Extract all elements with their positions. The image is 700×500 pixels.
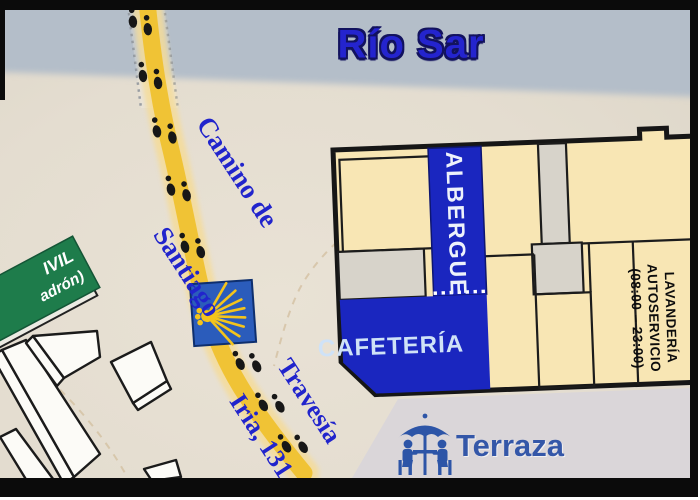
frame-top bbox=[0, 0, 700, 10]
frame-right bbox=[690, 0, 698, 497]
cafeteria-label: CAFETERÍA bbox=[317, 330, 464, 363]
frame-bottom bbox=[0, 478, 700, 497]
albergue-label: ALBERGUE bbox=[440, 151, 472, 297]
map-graphics: IVIL adrón) bbox=[0, 0, 700, 500]
corridor-wide bbox=[532, 243, 584, 295]
room-gray bbox=[338, 249, 426, 300]
terrace-label: Terraza bbox=[456, 428, 564, 464]
map-canvas: IVIL adrón) bbox=[0, 0, 700, 500]
corridor-upper bbox=[538, 143, 570, 244]
laundry-label: LAVANDERÍA AUTOSERVICIO (08:00 – 23:00) bbox=[626, 263, 680, 373]
river-label: Río Sar bbox=[337, 23, 484, 68]
frame-left bbox=[0, 0, 5, 100]
neighbour-buildings bbox=[0, 331, 181, 499]
